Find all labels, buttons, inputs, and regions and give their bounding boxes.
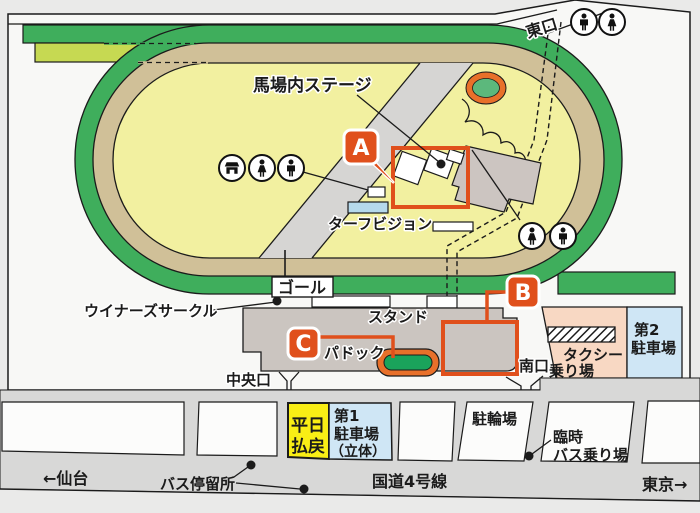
womens-restroom-icon — [519, 223, 545, 249]
winners-circle-dot — [273, 297, 282, 306]
parking1-line3: （立体） — [330, 443, 386, 460]
temp-bus-line2: バス乗り場 — [553, 446, 628, 464]
sendai-direction-label: ←仙台 — [43, 469, 88, 488]
womens-restroom-icon — [249, 155, 275, 181]
parking1-line2: 駐車場 — [334, 425, 379, 443]
goal-label: ゴール — [278, 278, 326, 297]
paddock — [377, 349, 439, 376]
winners-circle-label: ウイナーズサークル — [84, 302, 218, 320]
taxi-label-line2: 乗り場 — [549, 362, 594, 380]
parking2-label-line2: 駐車場 — [631, 339, 676, 357]
marker-c: C — [288, 328, 319, 359]
marker-b: B — [507, 276, 539, 308]
infield-pond — [466, 72, 506, 104]
bicycle-parking-label: 駐輪場 — [472, 410, 517, 428]
stage-label: 馬場内ステージ — [253, 75, 372, 96]
marker-a-label: A — [352, 136, 369, 161]
weekday-refund-line1: 平日 — [291, 416, 325, 436]
south-gate-label: 南口 — [519, 357, 549, 375]
weekday-refund-line2: 払戻 — [291, 436, 325, 457]
parking1-line1: 第1 — [334, 407, 359, 425]
turf-vision-screen — [348, 202, 388, 213]
city-block — [642, 401, 700, 463]
stage-pointer-dot — [437, 160, 446, 169]
city-block — [2, 402, 184, 455]
shop-icon — [219, 155, 245, 181]
womens-restroom-icon — [599, 9, 625, 35]
stand-label: スタンド — [368, 308, 428, 326]
parking2-label-line1: 第2 — [634, 321, 659, 339]
infield-structure — [433, 222, 473, 231]
taxi-queue-strip — [548, 327, 615, 342]
turf-vision-label: ターフビジョン — [328, 215, 432, 233]
paddock-label: パドック — [324, 344, 384, 362]
temp-bus-dot — [525, 452, 534, 461]
turf-chute-right — [558, 272, 675, 294]
tokyo-direction-label: 東京→ — [642, 475, 687, 494]
mens-restroom-icon — [278, 155, 304, 181]
temp-bus-line1: 臨時 — [553, 428, 583, 446]
city-block — [197, 402, 277, 456]
route4-label: 国道4号線 — [372, 472, 447, 491]
central-gate-label: 中央口 — [226, 371, 271, 389]
bus-stop-label: バス停留所 — [160, 475, 235, 493]
city-block — [398, 402, 455, 461]
mens-restroom-icon — [550, 223, 576, 249]
mens-restroom-icon — [571, 9, 597, 35]
racecourse-map: ターフビジョン 馬場内ステージ ゴール スタンド ウイナーズサークル B パドッ… — [0, 0, 700, 513]
infield-kiosk — [368, 187, 385, 197]
marker-b-label: B — [515, 281, 532, 306]
passage-exit — [427, 296, 457, 308]
marker-c-label: C — [295, 332, 311, 357]
